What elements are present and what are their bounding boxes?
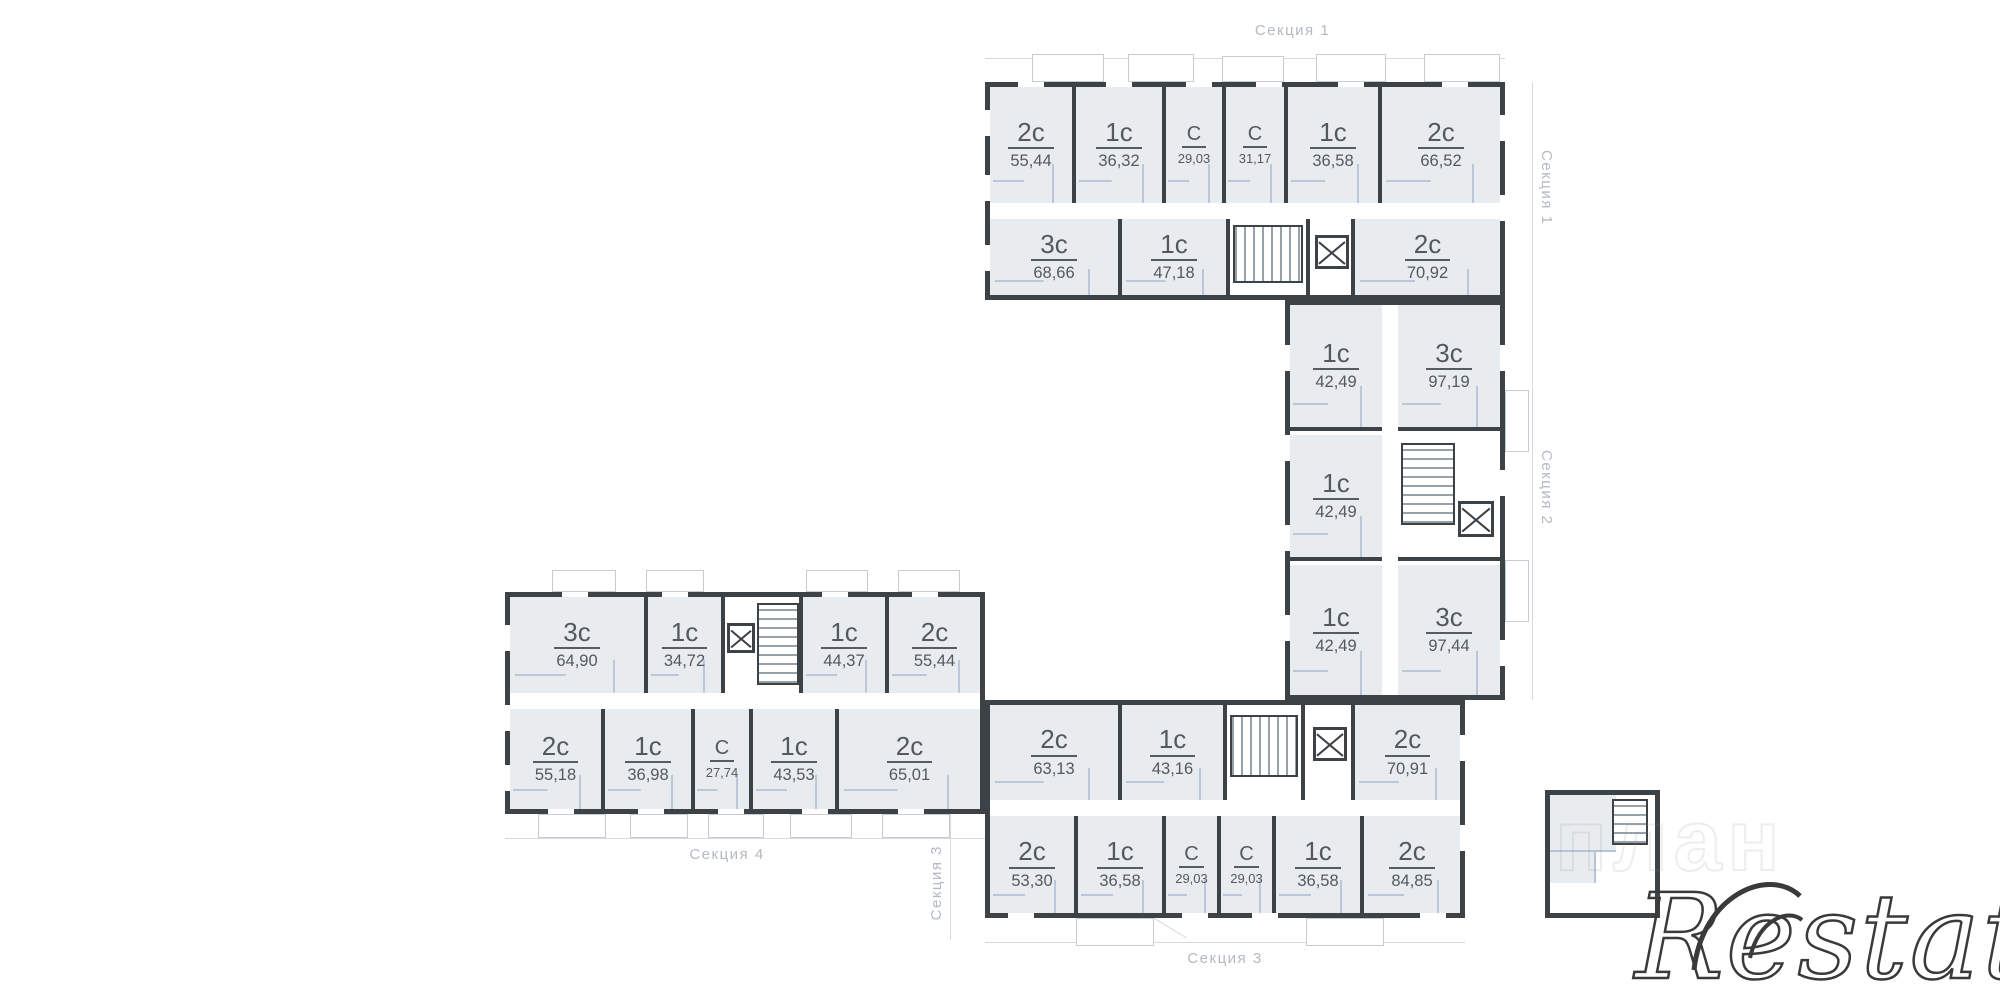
- window-mark: [822, 592, 848, 597]
- unit-area-label: 44,37: [823, 652, 864, 671]
- unit: 3с 64,90: [510, 597, 648, 693]
- balcony: [882, 814, 950, 838]
- unit-type-label: 2с: [912, 619, 957, 649]
- unit-area-label: 29,03: [1178, 151, 1211, 166]
- unit-type-label: С: [1182, 124, 1206, 148]
- unit-type-label: 3с: [1426, 340, 1471, 370]
- unit: 1с 42,49: [1290, 565, 1382, 695]
- elevator-shaft: [1310, 219, 1355, 295]
- stair-elevator-core: [725, 597, 803, 693]
- unit-type-label: 2с: [533, 733, 578, 763]
- unit-type-label: 1с: [1313, 470, 1358, 500]
- unit-area-label: 36,32: [1098, 152, 1139, 171]
- section-4-building: 3с 64,90 1с 34,72 1с 44,37 2с 55,44 2с: [505, 592, 985, 814]
- section-2-building: 1с 42,49 1с 42,49 1с 42,49 3с 97,19 3с: [1285, 300, 1505, 700]
- balcony: [538, 814, 606, 838]
- section-2-right-column: 3с 97,19 3с 97,44: [1398, 305, 1500, 695]
- window-mark: [1500, 195, 1505, 221]
- section-4-top-row: 3с 64,90 1с 34,72 1с 44,37 2с 55,44: [510, 597, 980, 693]
- unit: 1с 36,32: [1076, 87, 1166, 203]
- unit: 2с 63,13: [990, 705, 1122, 800]
- window-mark: [1420, 913, 1446, 918]
- stairwell: [1230, 219, 1310, 295]
- unit-area-label: 34,72: [664, 652, 705, 671]
- stairwell: [1227, 705, 1305, 800]
- balcony: [790, 814, 852, 838]
- balcony: [1316, 54, 1386, 82]
- unit-area-label: 55,44: [914, 652, 955, 671]
- unit-type-label: 1с: [821, 619, 866, 649]
- stairs-icon: [1230, 715, 1298, 777]
- section-2-left-column: 1с 42,49 1с 42,49 1с 42,49: [1290, 305, 1382, 695]
- unit-area-label: 70,92: [1407, 264, 1448, 283]
- unit: 1с 47,18: [1122, 219, 1230, 295]
- section-1-top-row: 2с 55,44 1с 36,32 С 29,03 С 31,17 1с 36,…: [990, 87, 1500, 203]
- unit-type-label: 3с: [1031, 231, 1076, 261]
- window-mark: [638, 809, 664, 814]
- section-1-bottom-row: 3с 68,66 1с 47,18 2с 70,92: [990, 219, 1500, 295]
- window-mark: [1186, 82, 1212, 87]
- balcony: [1505, 560, 1529, 622]
- unit-area-label: 55,18: [535, 766, 576, 785]
- unit: 3с 68,66: [990, 219, 1122, 295]
- window-mark: [1460, 735, 1465, 761]
- dimension-line: [1532, 82, 1533, 300]
- window-mark: [548, 809, 574, 814]
- unit-type-label: 2с: [1031, 726, 1076, 756]
- unit-area-label: 43,16: [1152, 760, 1193, 779]
- unit-type-label: 2с: [1418, 119, 1463, 149]
- unit: С 29,03: [1166, 816, 1221, 913]
- section-label-1-side: Секция 1: [1538, 150, 1555, 225]
- balcony: [1505, 390, 1529, 452]
- window-mark: [662, 592, 688, 597]
- unit-type-label: 2с: [1009, 838, 1054, 868]
- unit-type-label: 1с: [771, 733, 816, 763]
- unit-area-label: 64,90: [556, 652, 597, 671]
- unit: 2с 66,52: [1382, 87, 1500, 203]
- unit-type-label: 2с: [1008, 119, 1053, 149]
- balcony: [1032, 54, 1104, 82]
- unit: 1с 43,53: [753, 709, 839, 809]
- window-mark: [1460, 825, 1465, 851]
- balcony: [1076, 918, 1154, 946]
- unit: 2с 55,18: [510, 709, 605, 809]
- balcony: [646, 570, 704, 592]
- elevator-shaft: [1305, 705, 1355, 800]
- elevator-icon: [1315, 235, 1349, 269]
- window-mark: [898, 809, 924, 814]
- window-mark: [1252, 913, 1278, 918]
- unit-type-label: 2с: [1385, 726, 1430, 756]
- unit-area-label: 36,58: [1297, 872, 1338, 891]
- window-mark: [1182, 913, 1208, 918]
- unit-area-label: 29,03: [1175, 871, 1208, 886]
- unit-type-label: 2с: [1389, 838, 1434, 868]
- unit-area-label: 97,44: [1428, 637, 1469, 656]
- unit-area-label: 55,44: [1010, 152, 1051, 171]
- window-mark: [1285, 435, 1290, 461]
- section-3-bottom-row: 2с 53,30 1с 36,58 С 29,03 С 29,03 1с 36,…: [990, 816, 1460, 913]
- elevator-icon: [1313, 727, 1347, 761]
- unit-area-label: 27,74: [706, 765, 739, 780]
- unit-area-label: 43,53: [773, 766, 814, 785]
- section-label-2-side: Секция 2: [1538, 450, 1555, 525]
- balcony: [1424, 54, 1500, 82]
- window-mark: [1500, 470, 1505, 496]
- unit-type-label: 1с: [1295, 838, 1340, 868]
- window-mark: [1500, 640, 1505, 666]
- unit-area-label: 42,49: [1315, 637, 1356, 656]
- unit-type-label: 1с: [1097, 838, 1142, 868]
- unit: 2с 70,92: [1355, 219, 1500, 295]
- unit: 2с 55,44: [990, 87, 1076, 203]
- unit-area-label: 97,19: [1428, 373, 1469, 392]
- unit-type-label: С: [1179, 844, 1203, 868]
- window-mark: [802, 809, 828, 814]
- stair-elevator-core: [1398, 435, 1500, 561]
- window-mark: [1338, 82, 1364, 87]
- stairs-icon: [757, 603, 799, 685]
- stairs-icon: [1401, 443, 1455, 525]
- window-mark: [985, 110, 990, 136]
- elevator-icon: [727, 623, 755, 653]
- unit-area-label: 63,13: [1033, 760, 1074, 779]
- elevator-icon: [1458, 501, 1494, 537]
- unit-type-label: 1с: [1150, 726, 1195, 756]
- window-mark: [505, 625, 510, 651]
- unit-area-label: 70,91: [1387, 760, 1428, 779]
- unit-area-label: 68,66: [1033, 264, 1074, 283]
- unit: С 29,03: [1221, 816, 1276, 913]
- unit-area-label: 65,01: [889, 766, 930, 785]
- unit-area-label: 84,85: [1391, 872, 1432, 891]
- unit: 3с 97,44: [1398, 565, 1500, 695]
- unit-type-label: С: [710, 738, 734, 762]
- unit-type-label: 1с: [1310, 119, 1355, 149]
- unit: 2с 55,44: [889, 597, 980, 693]
- unit: С 31,17: [1226, 87, 1288, 203]
- unit-type-label: С: [1234, 844, 1258, 868]
- unit: С 27,74: [695, 709, 753, 809]
- floorplan-canvas: Секция 1 Секция 1 Секция 2 Секция 3 Секц…: [0, 0, 2000, 1002]
- window-mark: [505, 765, 510, 791]
- window-mark: [1106, 82, 1132, 87]
- unit-area-label: 42,49: [1315, 373, 1356, 392]
- stairs-icon: [1233, 225, 1303, 283]
- unit: 3с 97,19: [1398, 305, 1500, 431]
- section-label-1-top: Секция 1: [1210, 22, 1375, 39]
- unit-type-label: 1с: [1096, 119, 1141, 149]
- unit-type-label: 1с: [625, 733, 670, 763]
- section-label-4-bottom: Секция 4: [647, 846, 807, 863]
- unit: 1с 36,58: [1078, 816, 1166, 913]
- unit: 1с 34,72: [648, 597, 725, 693]
- window-mark: [1500, 115, 1505, 141]
- unit: 1с 44,37: [803, 597, 889, 693]
- window-mark: [985, 175, 990, 201]
- balcony: [1222, 56, 1284, 82]
- unit-area-label: 66,52: [1420, 152, 1461, 171]
- unit-type-label: 3с: [1426, 604, 1471, 634]
- unit-type-label: 1с: [1313, 604, 1358, 634]
- section-3-top-row: 2с 63,13 1с 43,16 2с 70,91: [990, 705, 1460, 800]
- unit-area-label: 47,18: [1153, 264, 1194, 283]
- unit: С 29,03: [1166, 87, 1226, 203]
- unit: 1с 36,58: [1288, 87, 1382, 203]
- balcony: [898, 570, 960, 592]
- balcony: [806, 570, 868, 592]
- section-4-bottom-row: 2с 55,18 1с 36,98 С 27,74 1с 43,53 2с 65…: [510, 709, 980, 809]
- window-mark: [1285, 525, 1290, 551]
- balcony: [708, 814, 764, 838]
- unit-type-label: 2с: [1405, 231, 1450, 261]
- unit-area-label: 36,58: [1312, 152, 1353, 171]
- unit: 1с 36,58: [1276, 816, 1364, 913]
- window-mark: [1008, 913, 1034, 918]
- unit: 2с 53,30: [990, 816, 1078, 913]
- window-mark: [505, 705, 510, 731]
- unit-type-label: 1с: [1313, 340, 1358, 370]
- unit-area-label: 53,30: [1011, 872, 1052, 891]
- window-mark: [1256, 82, 1282, 87]
- unit-type-label: 1с: [662, 619, 707, 649]
- unit: 1с 43,16: [1122, 705, 1227, 800]
- window-mark: [1500, 345, 1505, 371]
- unit-type-label: 1с: [1151, 231, 1196, 261]
- balcony: [1306, 918, 1384, 946]
- brand-watermark: Restate: [1635, 868, 2000, 1002]
- unit: 1с 42,49: [1290, 305, 1382, 431]
- balcony: [552, 570, 616, 592]
- window-mark: [912, 592, 938, 597]
- unit: 2с 65,01: [839, 709, 980, 809]
- unit-area-label: 36,58: [1099, 872, 1140, 891]
- unit-type-label: 3с: [554, 619, 599, 649]
- dimension-line: [1532, 300, 1533, 700]
- window-mark: [1285, 615, 1290, 641]
- unit: 1с 36,98: [605, 709, 695, 809]
- unit: 2с 84,85: [1364, 816, 1460, 913]
- unit-type-label: 2с: [887, 733, 932, 763]
- balcony: [1128, 54, 1194, 82]
- unit-area-label: 31,17: [1239, 151, 1272, 166]
- unit-area-label: 29,03: [1230, 871, 1263, 886]
- section-label-3-bottom: Секция 3: [1145, 950, 1305, 967]
- window-mark: [1285, 345, 1290, 371]
- unit-area-label: 36,98: [627, 766, 668, 785]
- window-mark: [718, 809, 744, 814]
- unit-type-label: С: [1243, 124, 1267, 148]
- section-3-building: 2с 63,13 1с 43,16 2с 70,91 2с 53,30: [985, 700, 1465, 918]
- window-mark: [562, 592, 588, 597]
- unit-area-label: 42,49: [1315, 503, 1356, 522]
- window-mark: [1442, 82, 1468, 87]
- section-label-3-side: Секция 3: [928, 845, 945, 920]
- section-1-building: 2с 55,44 1с 36,32 С 29,03 С 31,17 1с 36,…: [985, 82, 1505, 300]
- dimension-line: [985, 942, 1465, 943]
- dimension-line: [505, 838, 985, 839]
- unit: 2с 70,91: [1355, 705, 1460, 800]
- balcony: [630, 814, 688, 838]
- window-mark: [985, 245, 990, 271]
- window-mark: [1018, 82, 1044, 87]
- unit: 1с 42,49: [1290, 435, 1382, 561]
